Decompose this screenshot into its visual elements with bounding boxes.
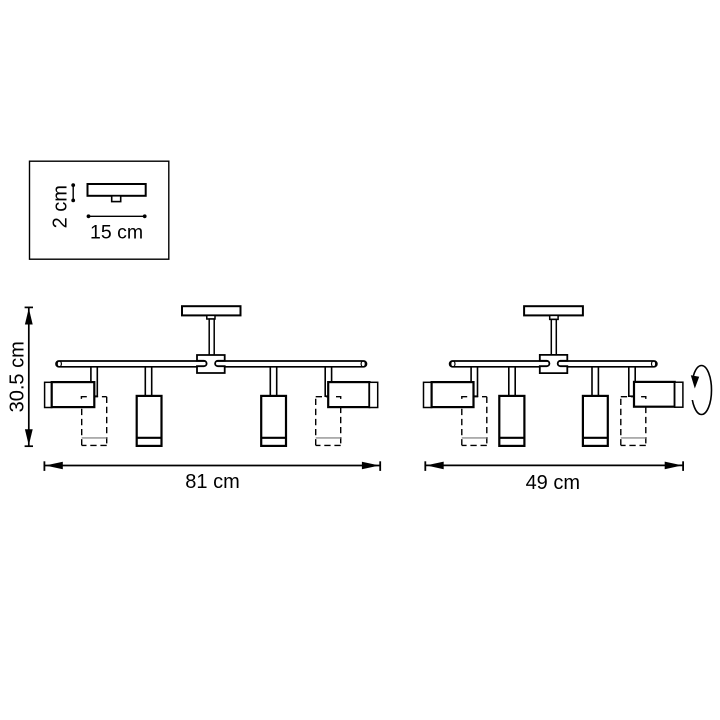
svg-text:30.5 cm: 30.5 cm <box>7 341 29 412</box>
svg-text:2 cm: 2 cm <box>49 185 71 228</box>
svg-text:49 cm: 49 cm <box>526 472 580 494</box>
svg-text:81 cm: 81 cm <box>185 471 239 493</box>
svg-text:15 cm: 15 cm <box>90 222 143 244</box>
